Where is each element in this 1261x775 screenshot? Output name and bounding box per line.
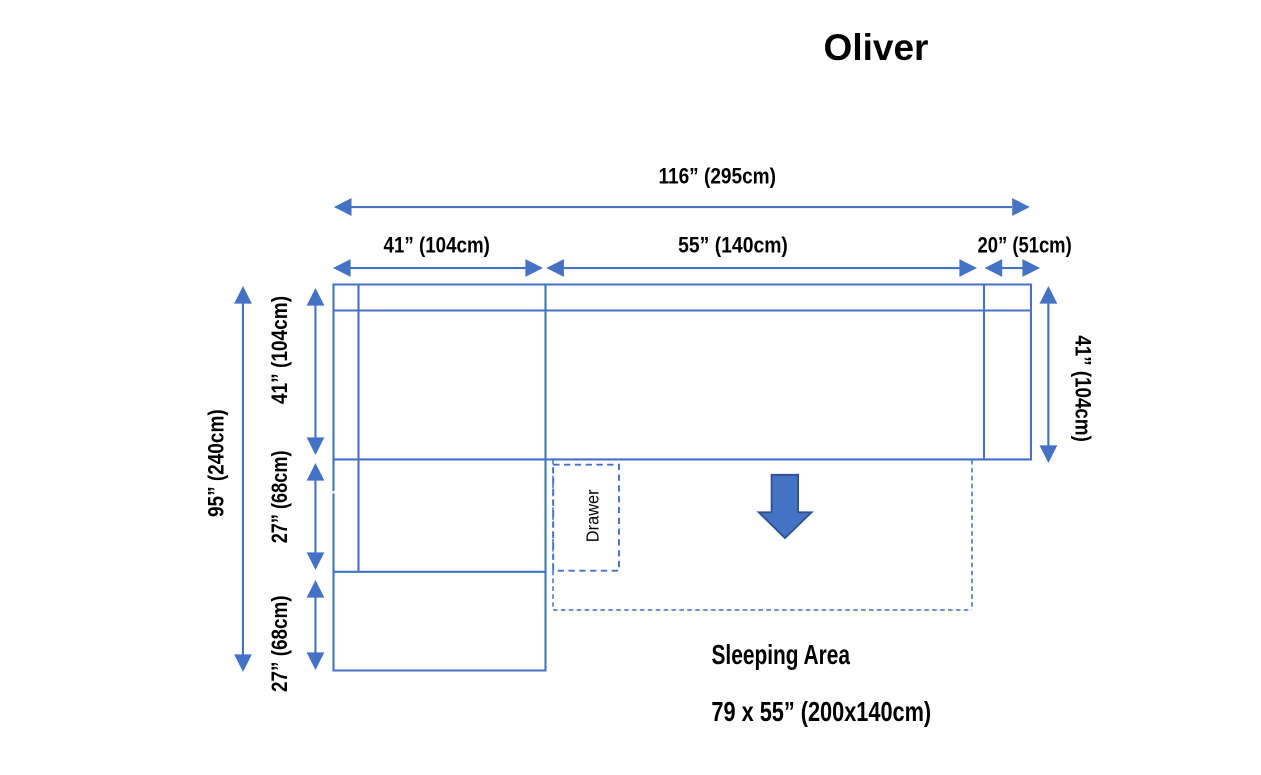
- svg-text:Oliver: Oliver: [824, 27, 929, 68]
- svg-text:41” (104cm): 41” (104cm): [1070, 335, 1095, 441]
- svg-text:Drawer: Drawer: [583, 489, 603, 542]
- svg-text:27” (68cm): 27” (68cm): [268, 451, 292, 544]
- svg-text:20” (51cm): 20” (51cm): [977, 234, 1071, 258]
- svg-text:79 x 55” (200x140cm): 79 x 55” (200x140cm): [711, 696, 931, 727]
- svg-text:116” (295cm): 116” (295cm): [658, 164, 775, 189]
- svg-text:55” (140cm): 55” (140cm): [678, 233, 788, 257]
- svg-text:41” (104cm): 41” (104cm): [268, 296, 293, 404]
- svg-text:Sleeping Area: Sleeping Area: [712, 640, 851, 671]
- svg-text:27” (68cm): 27” (68cm): [267, 595, 292, 692]
- svg-text:95” (240cm): 95” (240cm): [204, 409, 229, 517]
- svg-text:41” (104cm): 41” (104cm): [384, 233, 490, 258]
